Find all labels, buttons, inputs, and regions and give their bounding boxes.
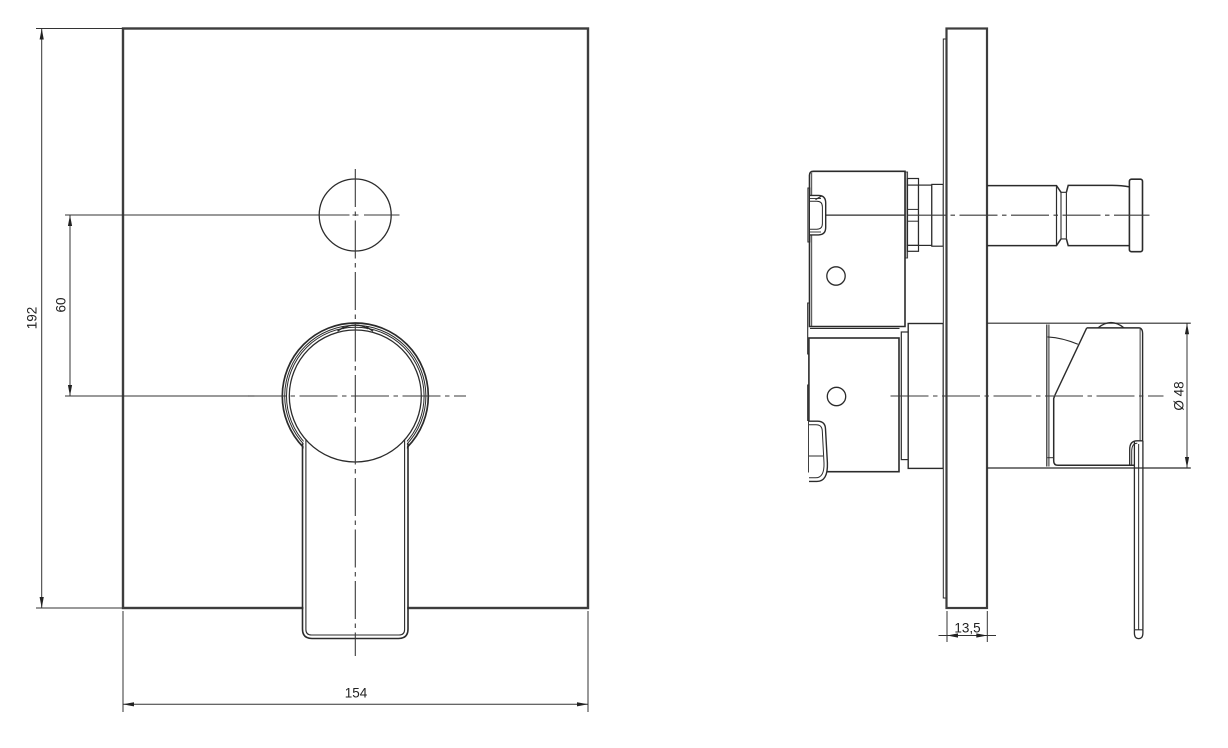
svg-text:13,5: 13,5 (954, 621, 980, 636)
svg-text:154: 154 (345, 686, 368, 701)
svg-text:60: 60 (54, 297, 69, 312)
svg-text:Ø 48: Ø 48 (1172, 381, 1187, 410)
svg-text:192: 192 (25, 307, 40, 330)
